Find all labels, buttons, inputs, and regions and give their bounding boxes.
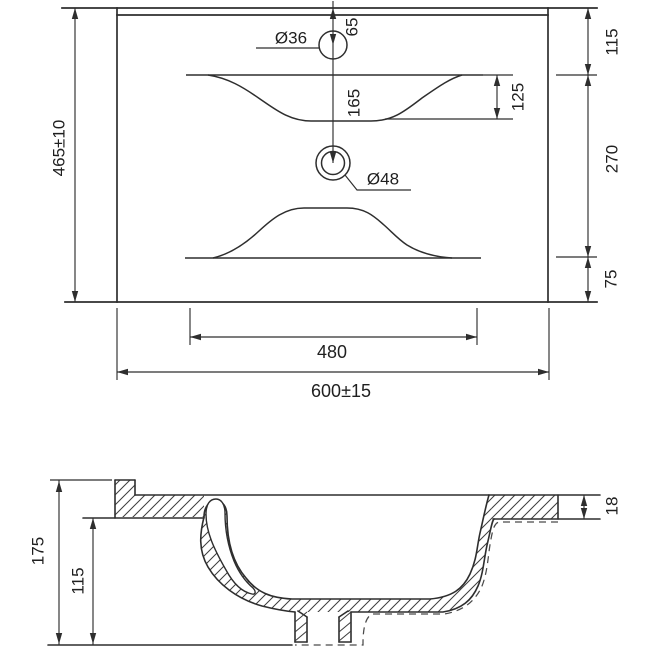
dim-front-edge-label: 75: [602, 270, 621, 289]
left-rim-hatch: [115, 480, 204, 517]
dim-basin-front-drop-label: 125: [509, 83, 528, 111]
right-rim-hatch: [489, 495, 558, 519]
dim-rim-thickness-label: 18: [603, 497, 622, 516]
technical-drawing-page: Ø36 Ø48 65 165 465±10: [0, 0, 650, 650]
dim-basin-width-label: 480: [317, 342, 347, 362]
dim-back-edge-label: 115: [603, 28, 622, 55]
basin-front-dip-curve: [208, 75, 462, 121]
top-view: Ø36 Ø48 65 165 465±10: [50, 1, 622, 401]
section-view: 175 115 18: [29, 480, 622, 645]
dim-rim-thickness: 18: [581, 495, 622, 519]
dim-depth-overall-label: 465±10: [50, 120, 69, 177]
dim-right-chain: 115 270 75: [556, 8, 622, 302]
faucet-diameter-label: Ø36: [275, 29, 307, 48]
drain-diameter-label: Ø48: [367, 170, 399, 189]
dim-basin-span-label: 270: [603, 145, 622, 173]
dim-basin-cutout-width: 480: [190, 308, 477, 362]
dim-section-height-label: 175: [29, 537, 48, 565]
dim-bowl-depth-label: 115: [69, 567, 88, 594]
drain-boss: [295, 611, 351, 643]
dim-section-height: 175: [29, 480, 113, 645]
dim-depth-overall: 465±10: [50, 8, 79, 302]
dim-basin-front-drop: 125: [385, 75, 528, 119]
dim-width-overall-label: 600±15: [311, 381, 371, 401]
dim-bowl-depth: 115: [69, 518, 97, 645]
dim-faucet-to-drain-label: 165: [345, 89, 364, 117]
washbasin-drawing: Ø36 Ø48 65 165 465±10: [0, 0, 650, 650]
basin-hump-curve: [213, 208, 452, 258]
dim-faucet-offset-label: 65: [343, 18, 362, 37]
